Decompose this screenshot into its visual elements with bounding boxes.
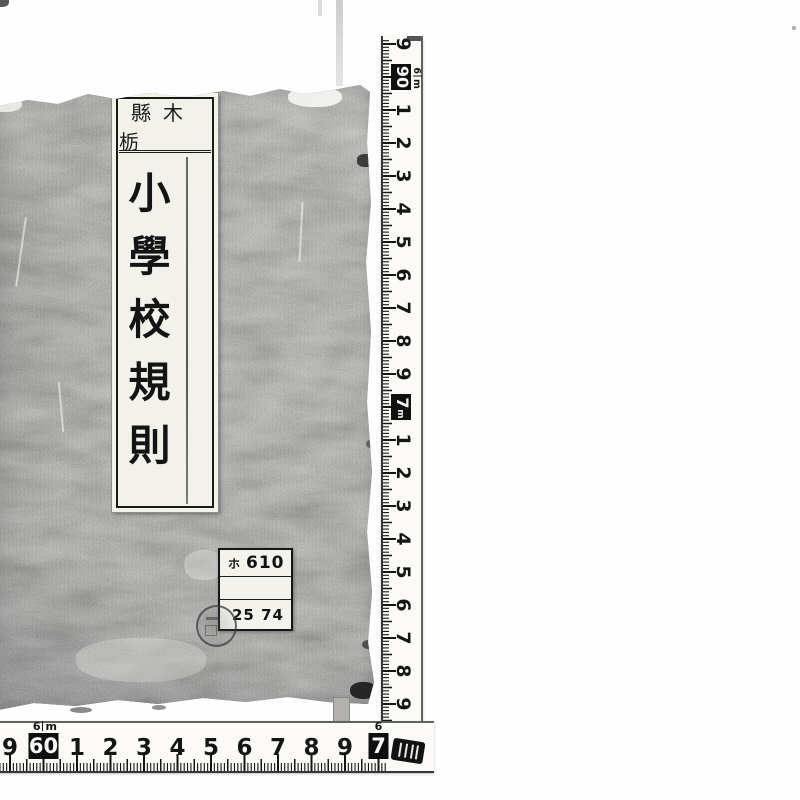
svg-text:60: 60: [29, 734, 58, 758]
svg-text:2: 2: [392, 136, 414, 149]
svg-text:7: 7: [393, 397, 412, 408]
svg-text:m: m: [411, 79, 422, 89]
svg-text:2: 2: [392, 466, 414, 479]
edge-blotch: [362, 640, 374, 649]
vertical-streak-small: [318, 0, 322, 16]
call-number-row-1: ホ 610: [220, 550, 291, 577]
book-title-vertical: 小學校規則: [125, 171, 167, 486]
svg-text:m: m: [46, 721, 57, 733]
edge-blotch: [350, 682, 377, 699]
svg-text:2: 2: [102, 735, 118, 761]
vertical-streak: [336, 0, 343, 86]
svg-text:8: 8: [392, 334, 414, 347]
title-label-crease: [186, 157, 188, 504]
svg-text:m: m: [395, 409, 405, 418]
horizontal-ruler: 9606m12345678976: [0, 721, 434, 773]
scanned-book-cover: 縣木栃 小學校規則 ホ 610 25 74 9906m1234567897m12…: [0, 0, 800, 800]
debris: [70, 707, 92, 713]
svg-text:3: 3: [392, 499, 414, 512]
svg-text:6: 6: [375, 721, 383, 733]
svg-text:5: 5: [203, 735, 219, 761]
svg-text:6: 6: [33, 721, 41, 733]
edge-blotch: [366, 440, 375, 448]
book-cover: 縣木栃 小學校規則 ホ 610 25 74: [0, 82, 380, 716]
svg-text:1: 1: [69, 735, 85, 761]
vertical-ruler-tape: 9906m1234567897m123456789: [381, 36, 423, 756]
svg-text:7: 7: [270, 735, 286, 761]
svg-text:3: 3: [136, 735, 152, 761]
svg-text:4: 4: [392, 532, 414, 545]
prefecture-label: 縣木栃: [119, 102, 211, 153]
debris: [152, 705, 166, 710]
corner-mark: [0, 0, 9, 7]
svg-text:4: 4: [169, 735, 185, 761]
worn-spot: [76, 638, 206, 682]
svg-text:4: 4: [392, 202, 414, 215]
title-label: 縣木栃 小學校規則: [112, 93, 218, 512]
call-number-kana: ホ: [228, 555, 240, 572]
horizontal-ruler-tape: 9606m12345678976: [0, 721, 434, 773]
svg-text:7: 7: [392, 631, 414, 644]
vertical-ruler: 9906m1234567897m123456789: [381, 36, 423, 756]
svg-text:90: 90: [393, 66, 412, 88]
scratch: [298, 202, 303, 262]
svg-text:1: 1: [392, 433, 414, 446]
svg-text:9: 9: [392, 697, 414, 710]
svg-text:6: 6: [392, 268, 414, 281]
scratch: [15, 217, 27, 287]
svg-text:5: 5: [392, 565, 414, 578]
speck: [792, 26, 796, 30]
scratch: [58, 382, 64, 432]
call-number-value: 610: [246, 553, 285, 573]
library-stamp: [196, 605, 237, 647]
svg-text:6: 6: [236, 735, 252, 761]
svg-text:7: 7: [392, 301, 414, 314]
edge-blotch: [357, 154, 376, 167]
svg-text:6: 6: [392, 598, 414, 611]
svg-text:1: 1: [392, 103, 414, 116]
svg-text:3: 3: [392, 169, 414, 182]
svg-text:5: 5: [392, 235, 414, 248]
svg-text:8: 8: [392, 664, 414, 677]
svg-text:9: 9: [337, 735, 353, 761]
svg-text:6: 6: [411, 67, 422, 74]
svg-text:9: 9: [392, 367, 414, 380]
call-number-row-2: [220, 577, 291, 600]
worn-spot: [0, 96, 22, 112]
worn-spot: [288, 87, 342, 107]
svg-text:9: 9: [2, 735, 18, 761]
svg-text:8: 8: [303, 735, 319, 761]
svg-text:7: 7: [371, 734, 386, 758]
